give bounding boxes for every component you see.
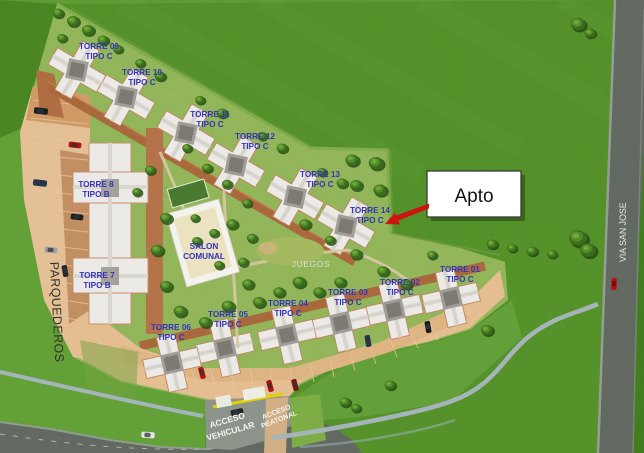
svg-text:VIA SAN JOSE: VIA SAN JOSE: [618, 202, 628, 262]
svg-text:TORRE 8TIPO B: TORRE 8TIPO B: [78, 180, 114, 199]
svg-text:JUEGOS: JUEGOS: [292, 259, 331, 269]
svg-text:TORRE 7TIPO B: TORRE 7TIPO B: [79, 271, 115, 290]
svg-text:Apto: Apto: [454, 186, 493, 207]
